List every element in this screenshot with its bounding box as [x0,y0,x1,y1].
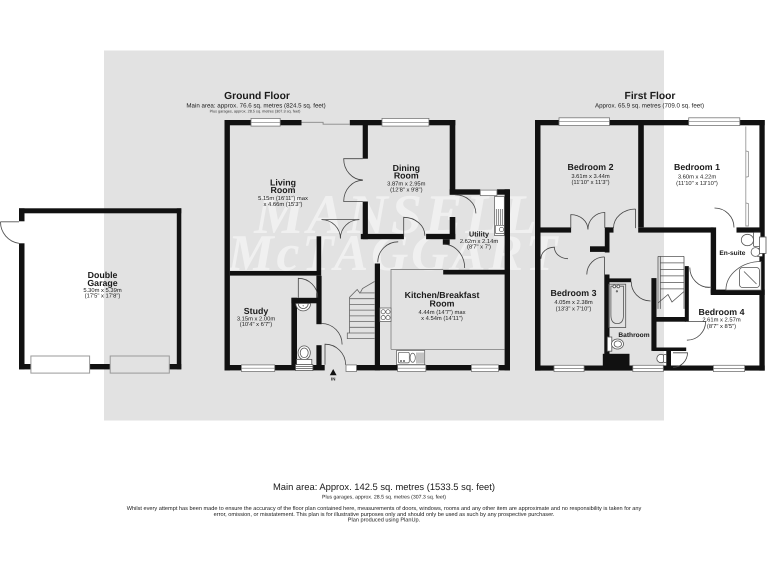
svg-text:Bathroom: Bathroom [618,332,649,339]
svg-text:(17'5" x 17'8"): (17'5" x 17'8") [85,293,121,300]
svg-text:Bedroom 3: Bedroom 3 [551,288,597,298]
svg-text:(10'4" x 6'7"): (10'4" x 6'7") [240,321,272,328]
svg-text:Plan produced using PlanUp.: Plan produced using PlanUp. [348,517,421,524]
svg-text:Main area: approx. 76.6 sq. me: Main area: approx. 76.6 sq. metres (824.… [186,102,325,109]
svg-text:Study: Study [244,306,269,316]
svg-text:(8'7" x 7'): (8'7" x 7') [467,244,491,251]
svg-text:Ground Floor: Ground Floor [224,91,290,102]
svg-text:4.44m (14'7") max: 4.44m (14'7") max [419,309,466,316]
svg-text:Approx. 65.9 sq. metres (709.0: Approx. 65.9 sq. metres (709.0 sq. feet) [595,102,704,109]
svg-text:(12'8" x 9'8"): (12'8" x 9'8") [390,187,422,194]
svg-text:Bedroom 2: Bedroom 2 [568,162,614,172]
svg-text:First Floor: First Floor [625,91,676,102]
svg-text:x 4.66m (15'3"): x 4.66m (15'3") [264,201,303,208]
svg-text:3.60m x 4.22m: 3.60m x 4.22m [678,173,717,180]
svg-text:Plus garages, approx. 28.5 sq.: Plus garages, approx. 28.5 sq. metres (3… [322,495,446,501]
svg-text:Bedroom 1: Bedroom 1 [674,162,720,172]
svg-text:(13'3" x 7'10"): (13'3" x 7'10") [556,306,592,313]
svg-text:Bedroom 4: Bedroom 4 [699,307,745,317]
svg-text:Plus garages, approx. 28.5 sq.: Plus garages, approx. 28.5 sq. metres (3… [210,109,301,113]
svg-text:Room: Room [430,298,455,308]
svg-text:3.87m x 2.95m: 3.87m x 2.95m [387,180,426,187]
svg-text:(11'10" x 11'3"): (11'10" x 11'3") [571,179,609,186]
svg-text:Main area: Approx. 142.5 sq. m: Main area: Approx. 142.5 sq. metres (153… [273,481,495,492]
svg-text:(8'7" x 8'5"): (8'7" x 8'5") [707,323,736,330]
svg-text:Whilst every attempt has been: Whilst every attempt has been made to en… [127,505,642,512]
svg-text:Room: Room [271,185,296,195]
svg-text:Utility: Utility [469,229,489,238]
svg-text:En-suite: En-suite [719,250,745,257]
svg-text:2.61m x 2.57m: 2.61m x 2.57m [702,317,741,324]
svg-text:4.05m x 2.38m: 4.05m x 2.38m [554,299,593,306]
svg-text:3.61m x 3.44m: 3.61m x 3.44m [571,173,610,180]
svg-text:IN: IN [331,377,335,382]
svg-text:Room: Room [394,170,419,180]
svg-text:(11'10" x 13'10"): (11'10" x 13'10") [676,180,718,187]
svg-text:Garage: Garage [87,278,117,288]
svg-text:x 4.54m (14'11"): x 4.54m (14'11") [421,315,463,322]
